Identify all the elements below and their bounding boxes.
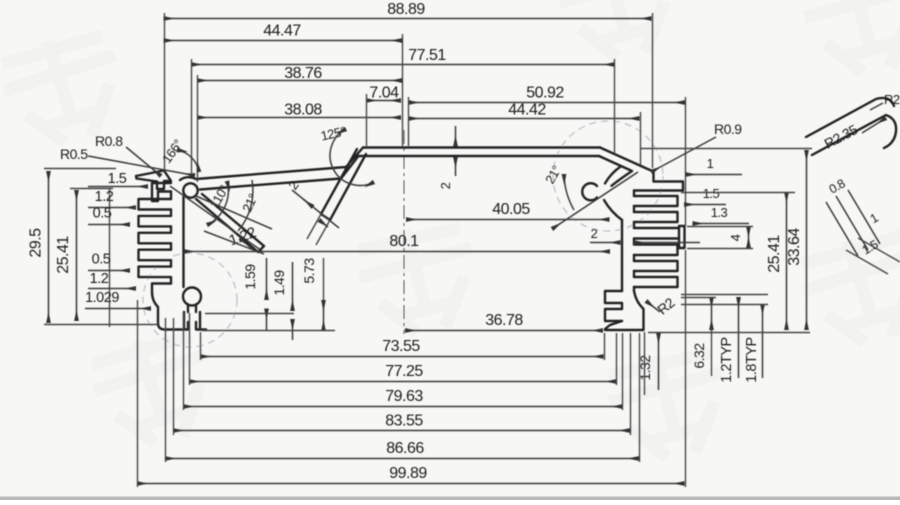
svg-text:2: 2 bbox=[438, 182, 453, 189]
svg-text:40.05: 40.05 bbox=[492, 201, 530, 218]
svg-text:79.63: 79.63 bbox=[385, 388, 423, 405]
svg-text:0.5: 0.5 bbox=[92, 252, 111, 268]
svg-text:44.42: 44.42 bbox=[508, 102, 546, 119]
svg-text:R0.9: R0.9 bbox=[714, 121, 742, 137]
svg-text:1.5: 1.5 bbox=[703, 186, 720, 201]
svg-text:80.1: 80.1 bbox=[389, 233, 419, 250]
svg-text:38.08: 38.08 bbox=[284, 102, 322, 119]
svg-text:25.41: 25.41 bbox=[55, 236, 72, 274]
svg-text:1.5: 1.5 bbox=[108, 171, 127, 187]
svg-text:77.51: 77.51 bbox=[408, 47, 446, 64]
svg-text:36.78: 36.78 bbox=[485, 312, 523, 329]
svg-text:0.5: 0.5 bbox=[93, 206, 112, 222]
svg-text:1.49: 1.49 bbox=[271, 270, 287, 296]
svg-text:1.59: 1.59 bbox=[242, 264, 258, 290]
svg-text:29.5: 29.5 bbox=[28, 228, 45, 258]
svg-text:R2: R2 bbox=[884, 92, 900, 107]
svg-text:1.2TYP: 1.2TYP bbox=[719, 337, 735, 382]
svg-text:99.89: 99.89 bbox=[389, 465, 427, 482]
svg-text:50.92: 50.92 bbox=[526, 85, 564, 102]
svg-text:R0.5: R0.5 bbox=[60, 146, 88, 162]
svg-text:1.029: 1.029 bbox=[85, 290, 119, 306]
svg-text:6.32: 6.32 bbox=[691, 343, 707, 369]
svg-text:1.8TYP: 1.8TYP bbox=[744, 337, 760, 382]
svg-text:86.66: 86.66 bbox=[386, 440, 424, 457]
svg-text:33.64: 33.64 bbox=[786, 228, 803, 266]
svg-text:R0.8: R0.8 bbox=[95, 133, 123, 149]
svg-text:1.3: 1.3 bbox=[711, 205, 728, 220]
svg-text:5.73: 5.73 bbox=[301, 258, 317, 284]
svg-text:1.2: 1.2 bbox=[90, 271, 109, 287]
svg-text:1.2: 1.2 bbox=[95, 189, 114, 205]
svg-text:1: 1 bbox=[707, 156, 714, 171]
svg-text:73.55: 73.55 bbox=[382, 338, 420, 355]
svg-text:2: 2 bbox=[591, 226, 598, 241]
svg-text:25.41: 25.41 bbox=[766, 235, 783, 273]
svg-text:77.25: 77.25 bbox=[385, 363, 423, 380]
svg-text:7.04: 7.04 bbox=[369, 85, 399, 102]
svg-text:4: 4 bbox=[728, 234, 743, 241]
svg-text:88.89: 88.89 bbox=[387, 1, 425, 18]
svg-text:83.55: 83.55 bbox=[385, 413, 423, 430]
svg-text:44.47: 44.47 bbox=[263, 23, 301, 40]
svg-text:38.76: 38.76 bbox=[284, 65, 322, 82]
